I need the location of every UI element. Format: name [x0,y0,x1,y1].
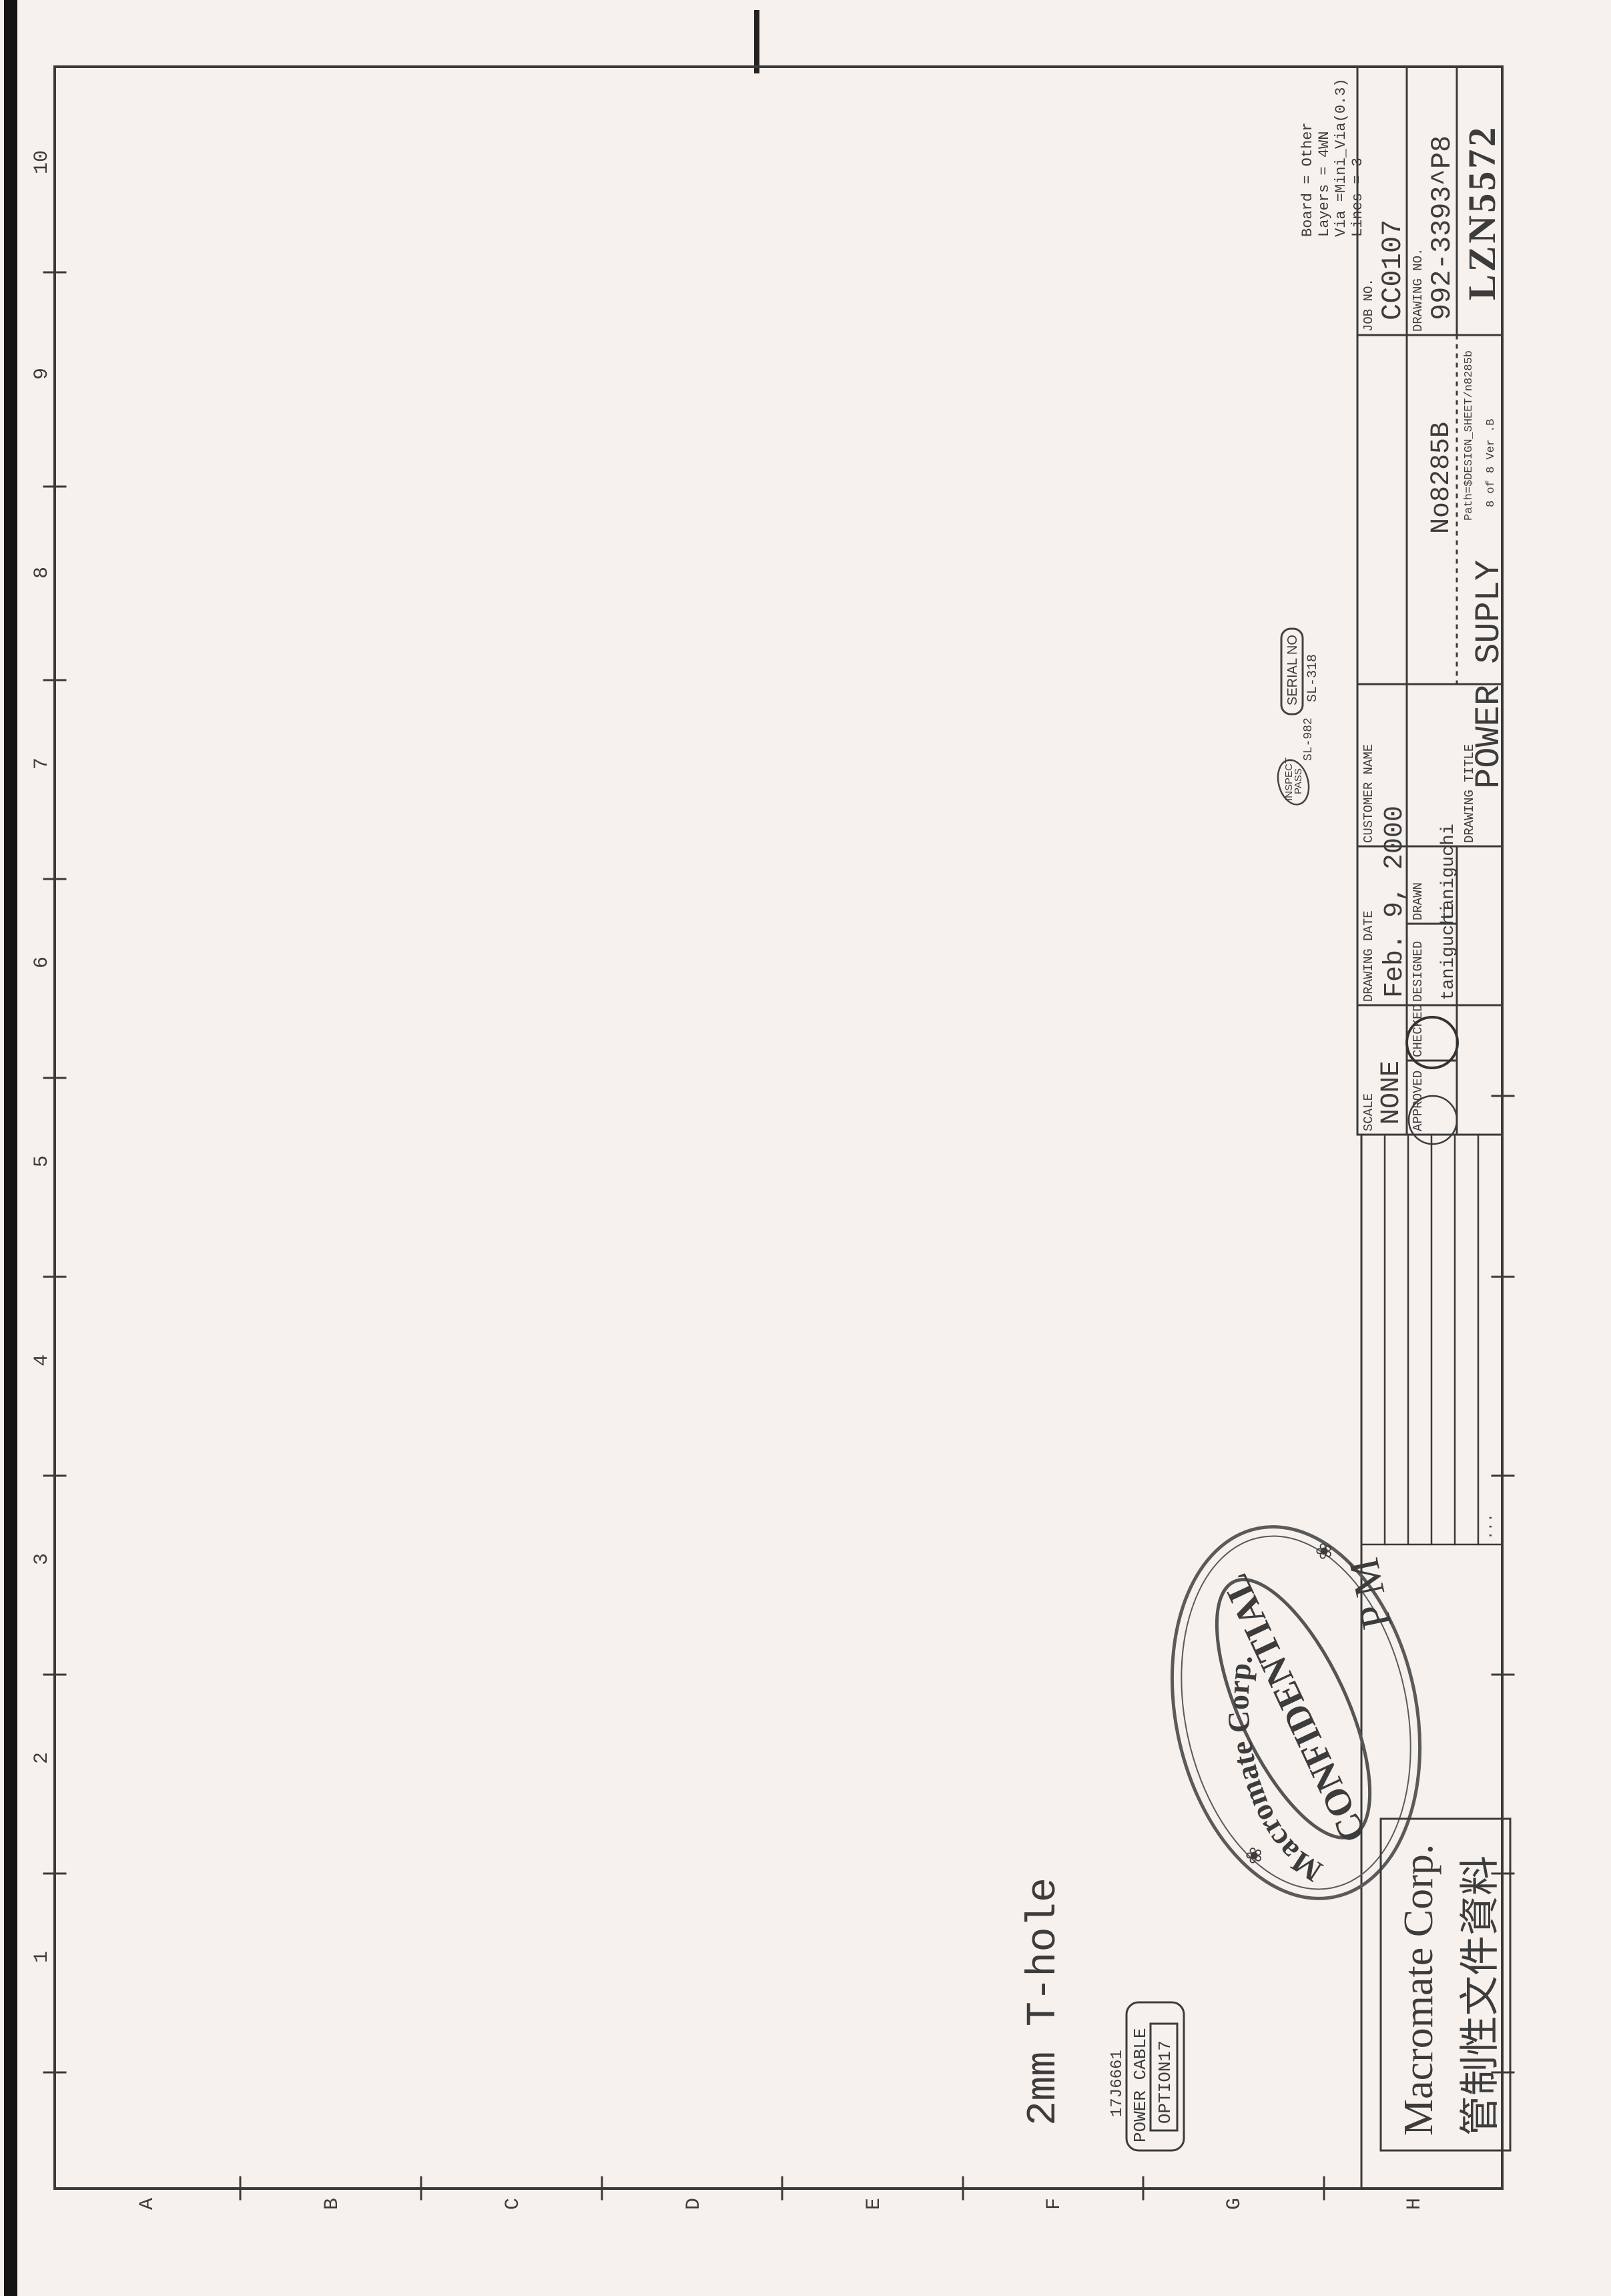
svg-text:SL-982: SL-982 [1302,718,1315,761]
svg-text:Layers = 4WN: Layers = 4WN [1316,131,1333,237]
svg-text:管制性文件資料: 管制性文件資料 [1458,1855,1502,2136]
svg-text:992-3393^P8: 992-3393^P8 [1426,135,1458,320]
svg-text:5: 5 [31,1155,53,1167]
svg-text:2: 2 [31,1752,53,1764]
svg-text:❀: ❀ [1310,1543,1340,1559]
svg-text:9: 9 [31,368,53,380]
svg-text:17J6661: 17J6661 [1108,2050,1126,2117]
svg-text:B: B [321,2198,344,2210]
svg-text:C: C [502,2198,525,2210]
svg-text:DRAWING DATE: DRAWING DATE [1361,910,1376,1002]
svg-text:4: 4 [31,1354,53,1366]
svg-text:PASS: PASS [1293,768,1304,794]
svg-text:Board = Other: Board = Other [1299,122,1316,237]
svg-text:❀: ❀ [1240,1847,1270,1863]
svg-text:DESIGNED: DESIGNED [1411,941,1425,1002]
svg-text:taniguchi: taniguchi [1439,824,1459,921]
svg-text:2mm T-hole: 2mm T-hole [1020,1878,1067,2126]
svg-text:3: 3 [31,1553,53,1565]
svg-text:Via =Mini_Via(0.3): Via =Mini_Via(0.3) [1333,78,1349,237]
svg-text:Lines = 3: Lines = 3 [1349,158,1366,237]
svg-text:JOB NO.: JOB NO. [1361,278,1376,332]
svg-text:CC0107: CC0107 [1377,220,1409,320]
svg-text:10: 10 [31,150,53,174]
svg-text:SL-318: SL-318 [1305,654,1321,702]
svg-text:H: H [1403,2198,1426,2210]
svg-text:1: 1 [31,1951,53,1963]
svg-text:6: 6 [31,956,53,968]
svg-text:Feb. 9, 2000: Feb. 9, 2000 [1380,806,1410,998]
svg-text:NONE: NONE [1377,1061,1407,1125]
svg-text:8 of 8 Ver .B: 8 of 8 Ver .B [1485,418,1498,507]
svg-text:Path=$DESIGN_SHEET/n8285b: Path=$DESIGN_SHEET/n8285b [1463,350,1476,521]
svg-text:Macromate Corp.: Macromate Corp. [1396,1844,1441,2136]
svg-text:POWER CABLE: POWER CABLE [1131,2028,1151,2142]
svg-text:OPTION17: OPTION17 [1155,2040,1175,2124]
svg-text:G: G [1223,2198,1246,2210]
svg-text:7: 7 [31,758,53,770]
svg-text:...: ... [1480,1513,1496,1540]
svg-text:D: D [683,2198,705,2210]
svg-text:SERIAL NO: SERIAL NO [1285,635,1300,705]
svg-text:CUSTOMER NAME: CUSTOMER NAME [1361,744,1376,843]
svg-text:A: A [136,2198,159,2210]
svg-text:DRAWING NO.: DRAWING NO. [1411,248,1425,332]
svg-text:SCALE: SCALE [1361,1093,1376,1131]
svg-text:POWER SUPLY: POWER SUPLY [1470,560,1509,789]
svg-text:DRAWN: DRAWN [1411,882,1425,920]
svg-text:8: 8 [31,567,53,579]
svg-text:LZN5572: LZN5572 [1460,125,1504,300]
svg-text:No8285B: No8285B [1427,422,1457,534]
svg-text:E: E [863,2198,886,2210]
svg-text:F: F [1043,2198,1066,2210]
svg-text:CHECKED: CHECKED [1411,1004,1425,1057]
